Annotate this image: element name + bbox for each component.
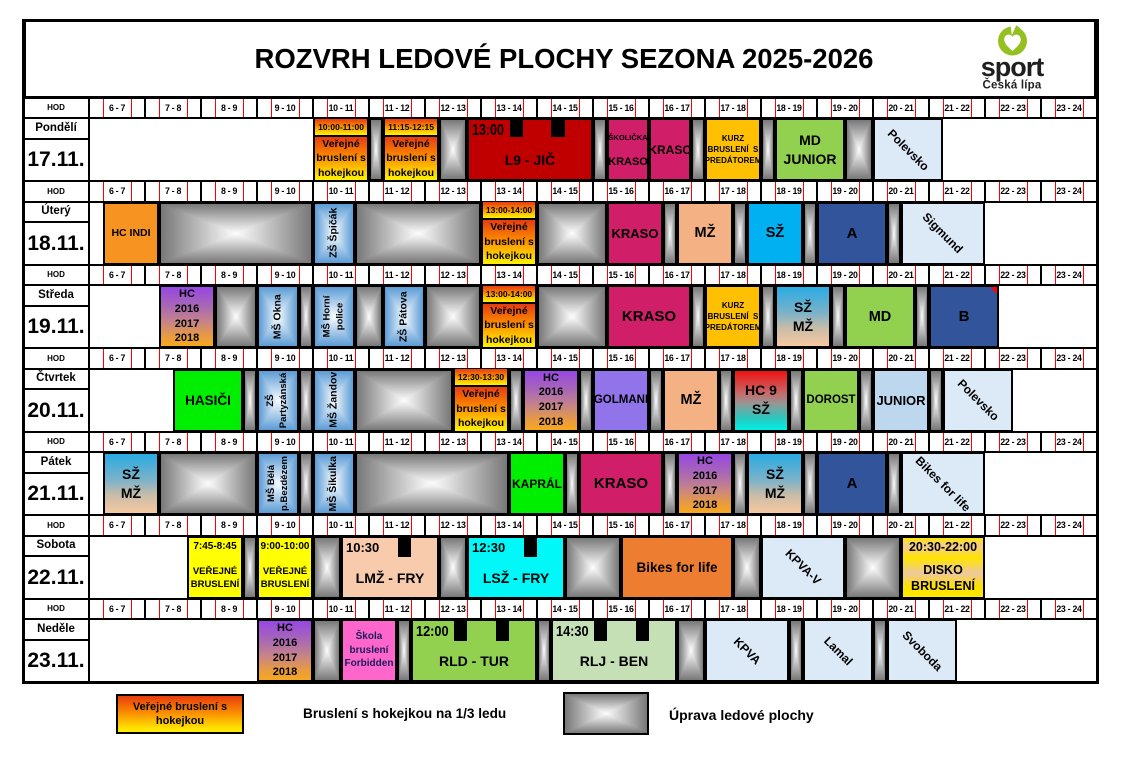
svg-text:Česká lípa: Česká lípa <box>983 79 1042 92</box>
svg-text:sport: sport <box>981 52 1045 82</box>
